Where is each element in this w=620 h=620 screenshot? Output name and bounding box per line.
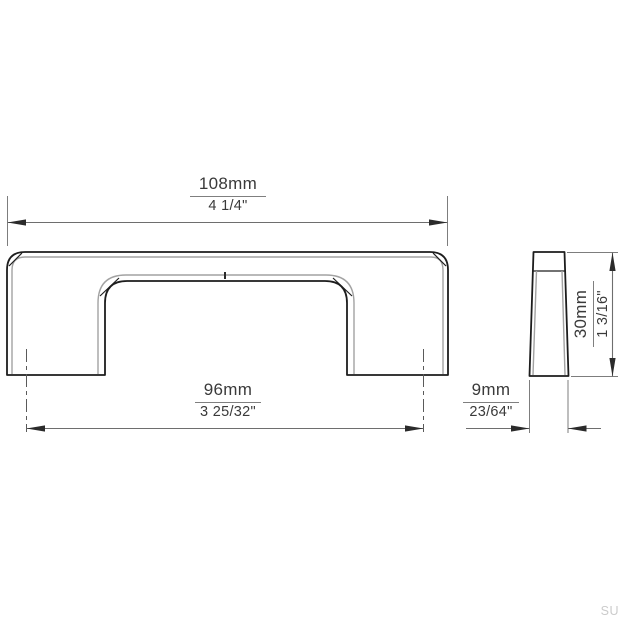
arrowhead-left: [8, 219, 27, 225]
dimension-hole-spacing: 96mm 3 25/32": [163, 381, 293, 421]
arrowhead-right: [405, 425, 424, 431]
arrowhead-left: [511, 425, 530, 431]
dimension-height: 30mm 1 3/16": [570, 252, 614, 376]
handle-outer-outline: [7, 252, 448, 375]
dim-hole-spacing-lines: [27, 425, 424, 431]
dimension-inch-value: 3 25/32": [200, 403, 256, 421]
dimension-inch-value: 1 3/16": [594, 290, 612, 338]
dimension-mm-value: 9mm: [463, 381, 520, 403]
arrowhead-left: [27, 425, 46, 431]
watermark-label: SU: [601, 604, 619, 618]
arrowhead-right: [568, 425, 587, 431]
arrowhead-right: [429, 219, 448, 225]
dimension-inch-value: 23/64": [469, 403, 512, 421]
technical-drawing-svg: [0, 0, 620, 620]
side-view: [530, 252, 569, 376]
handle-cutout-contour: [98, 275, 354, 374]
dimension-mm-value: 30mm: [572, 281, 594, 347]
dimension-inch-value: 4 1/4": [208, 197, 247, 215]
dimension-overall-width: 108mm 4 1/4": [163, 175, 293, 215]
dimension-mm-value: 108mm: [190, 175, 266, 197]
drawing-canvas: 108mm 4 1/4" 96mm 3 25/32" 30mm 1 3/16" …: [0, 0, 620, 620]
dimension-mm-value: 96mm: [195, 381, 261, 403]
dimension-depth: 9mm 23/64": [436, 381, 546, 421]
